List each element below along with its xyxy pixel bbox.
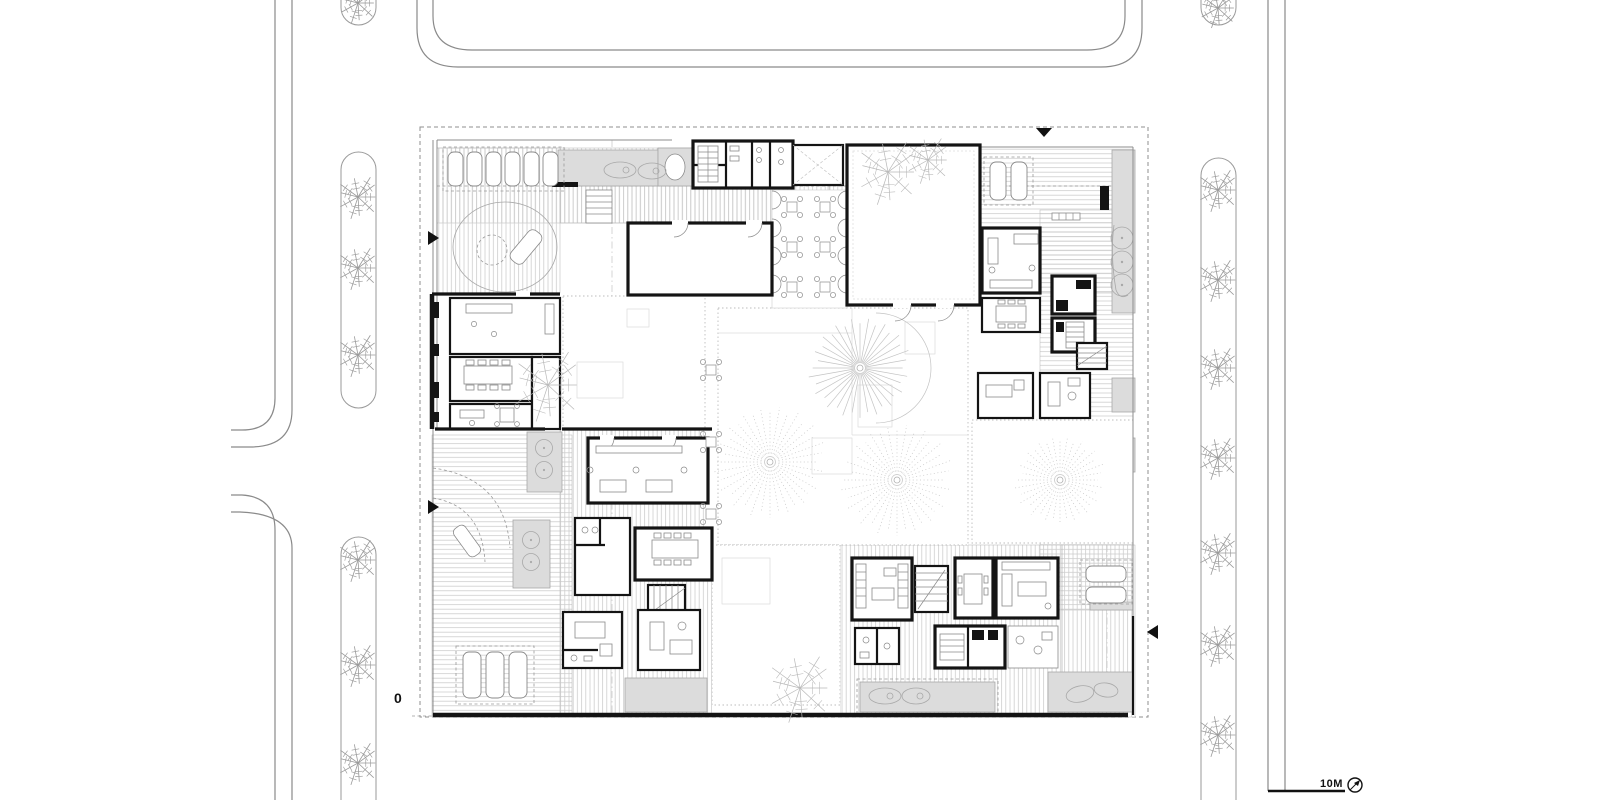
parking-stall — [505, 152, 520, 186]
parking-stall — [1086, 566, 1126, 582]
plan-drawing — [0, 0, 1600, 800]
parking-stall — [543, 152, 558, 186]
parking-stall — [448, 152, 463, 186]
parking-stall — [1011, 162, 1027, 200]
parking-stall — [463, 652, 481, 698]
parking-stall — [486, 652, 504, 698]
parking-stall — [524, 152, 539, 186]
parking-group — [456, 646, 534, 704]
parking-stall — [509, 652, 527, 698]
origin-label: 0 — [394, 690, 402, 706]
entry-arrow-icon — [1036, 128, 1052, 137]
entry-arrow-icon — [1147, 625, 1158, 639]
scale-label: 10M — [1320, 778, 1343, 790]
site-plan-canvas: 0 10M — [0, 0, 1600, 800]
parking-stall — [990, 162, 1006, 200]
parking-stall — [486, 152, 501, 186]
parking-stall — [1086, 587, 1126, 603]
north-indicator-icon — [1348, 778, 1362, 792]
parking-stall — [467, 152, 482, 186]
building — [432, 140, 1135, 717]
